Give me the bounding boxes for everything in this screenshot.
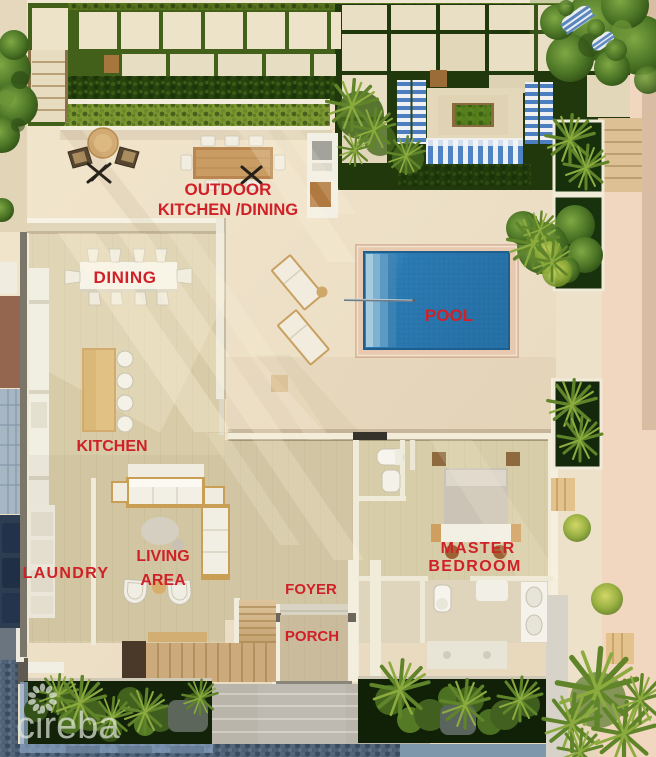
svg-text:OUTDOOR: OUTDOOR [185,180,272,199]
svg-text:AREA: AREA [140,572,186,589]
svg-text:MASTER: MASTER [441,540,516,557]
svg-text:POOL: POOL [425,306,473,325]
svg-text:KITCHEN /DINING: KITCHEN /DINING [158,201,298,219]
svg-text:BEDROOM: BEDROOM [428,558,521,575]
svg-text:cireba: cireba [16,705,120,747]
svg-text:PORCH: PORCH [285,628,339,645]
svg-text:KITCHEN: KITCHEN [76,438,147,455]
svg-text:DINING: DINING [93,268,156,287]
svg-text:LAUNDRY: LAUNDRY [23,565,110,582]
svg-text:LIVING: LIVING [136,548,189,565]
svg-text:FOYER: FOYER [285,581,337,598]
